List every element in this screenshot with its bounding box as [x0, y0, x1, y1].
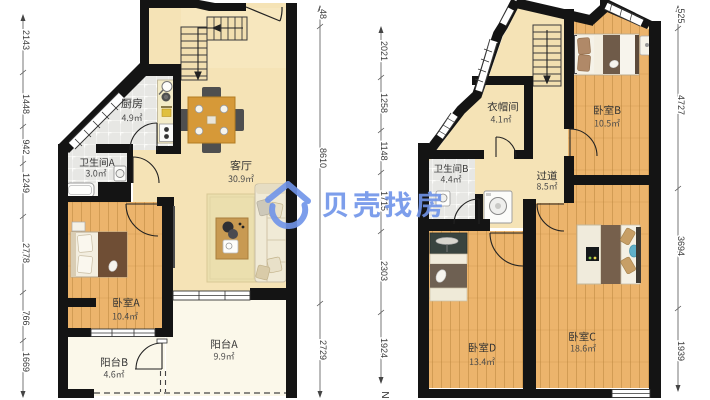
svg-text:1669: 1669 — [21, 352, 31, 372]
svg-text:1148: 1148 — [379, 141, 389, 160]
svg-text:2021: 2021 — [379, 41, 389, 61]
svg-text:1924: 1924 — [379, 338, 389, 358]
svg-text:2729: 2729 — [318, 340, 328, 360]
svg-text:48: 48 — [318, 9, 328, 19]
svg-text:N: N — [379, 391, 390, 398]
svg-text:2778: 2778 — [21, 243, 31, 263]
svg-text:4727: 4727 — [676, 95, 686, 115]
svg-text:525: 525 — [676, 8, 686, 23]
svg-text:766: 766 — [21, 310, 31, 325]
svg-text:2303: 2303 — [379, 261, 389, 281]
svg-text:3694: 3694 — [676, 236, 686, 256]
svg-text:2143: 2143 — [21, 30, 31, 50]
svg-text:1249: 1249 — [21, 173, 31, 193]
svg-text:8610: 8610 — [318, 148, 328, 168]
svg-text:1448: 1448 — [21, 94, 31, 114]
svg-text:1939: 1939 — [676, 341, 686, 361]
svg-text:942: 942 — [21, 139, 31, 154]
svg-text:1258: 1258 — [379, 93, 389, 113]
